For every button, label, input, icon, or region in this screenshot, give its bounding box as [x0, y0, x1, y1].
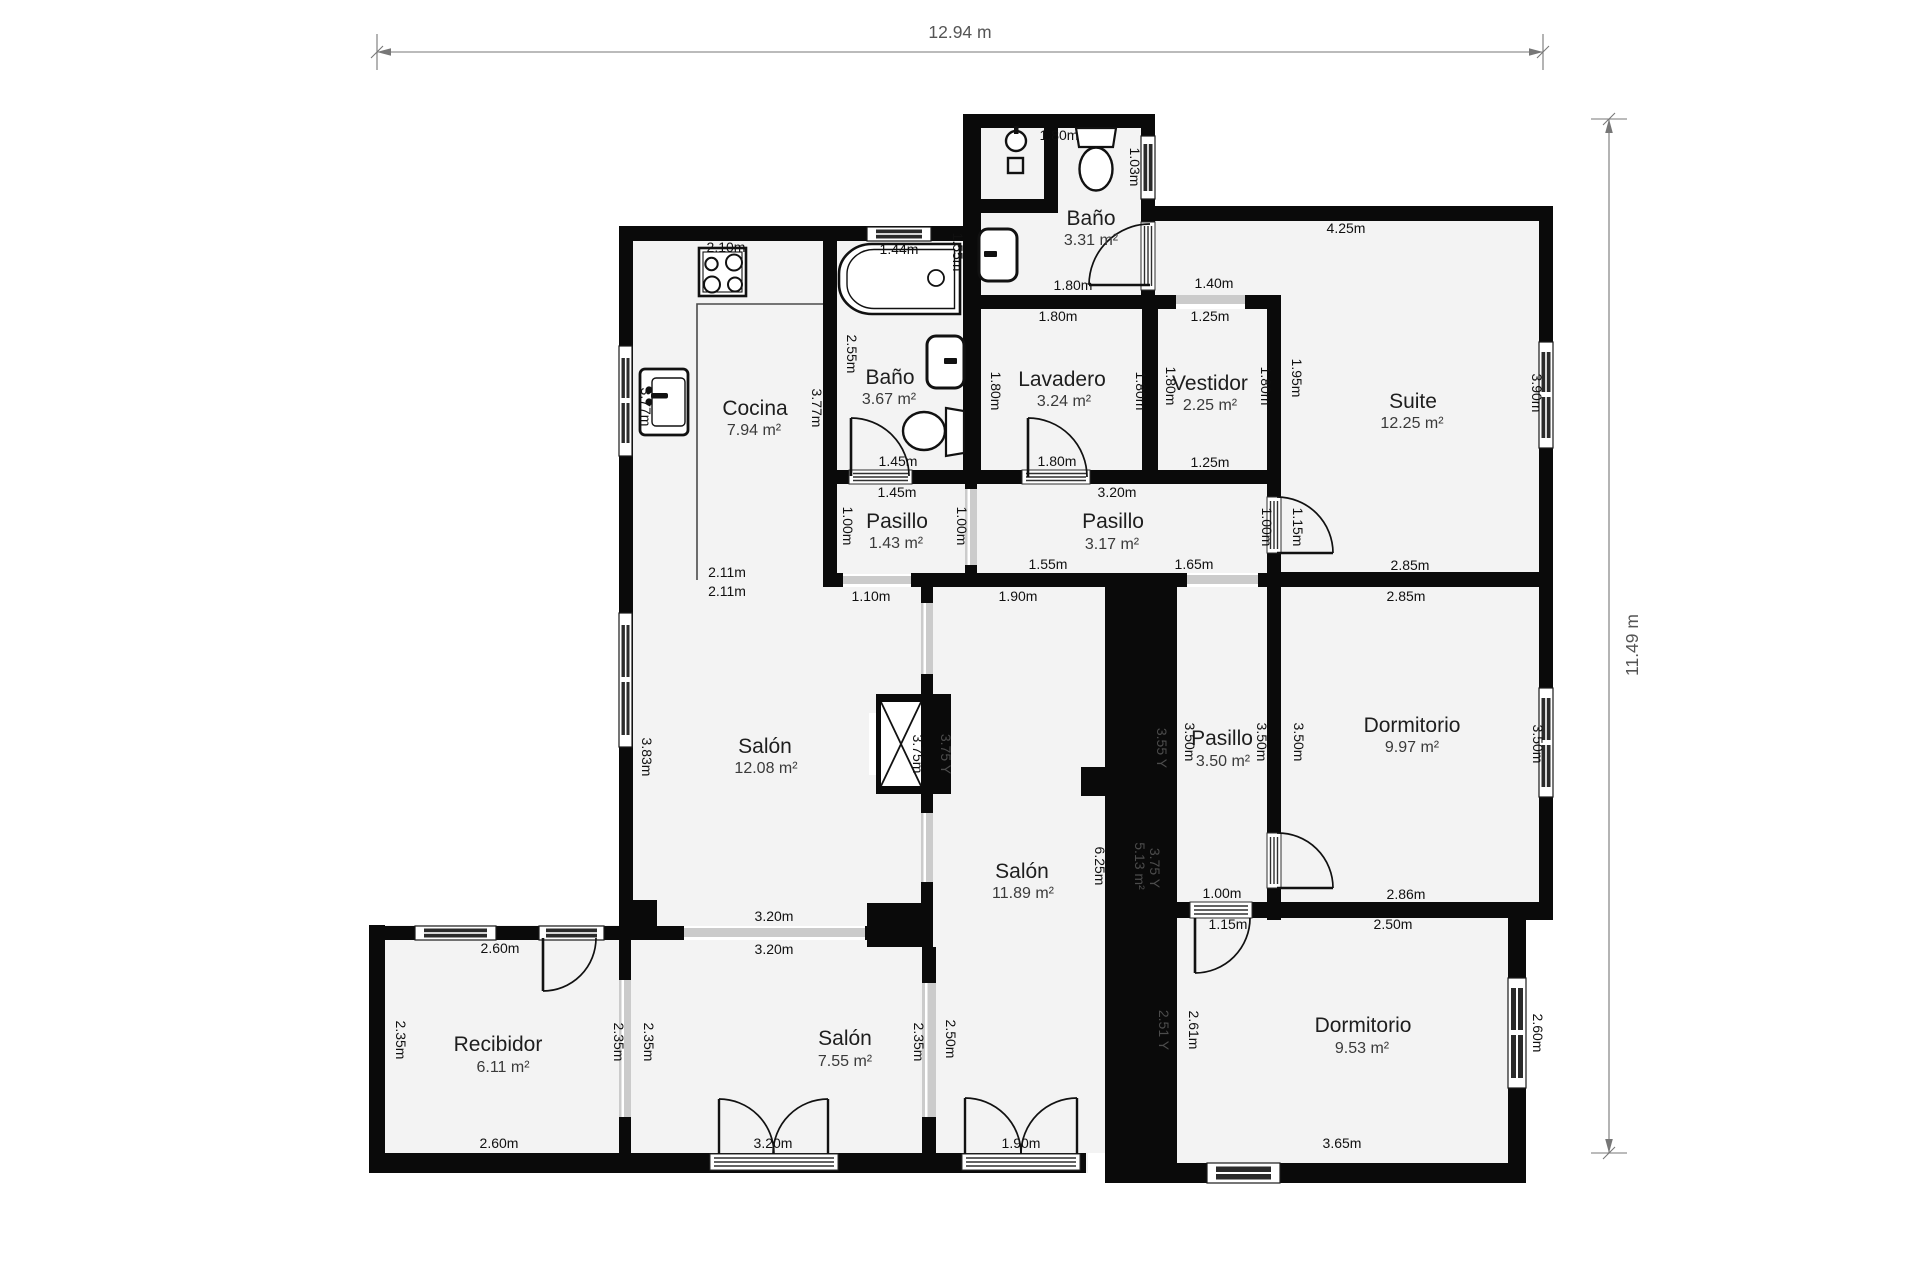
svg-text:3.17 m²: 3.17 m²	[1085, 536, 1140, 553]
svg-text:1.10m: 1.10m	[852, 588, 891, 604]
svg-text:Pasillo: Pasillo	[866, 510, 928, 533]
svg-text:1.80m: 1.80m	[1133, 372, 1149, 411]
svg-text:1.00m: 1.00m	[840, 507, 856, 546]
svg-text:1.65m: 1.65m	[1175, 556, 1214, 572]
svg-text:1.45m: 1.45m	[879, 453, 918, 469]
svg-text:2.11m: 2.11m	[708, 583, 746, 599]
svg-text:3.20m: 3.20m	[1098, 484, 1137, 500]
svg-text:1.43 m²: 1.43 m²	[869, 535, 924, 552]
svg-text:1.80m: 1.80m	[1040, 127, 1079, 143]
svg-text:2.35m: 2.35m	[611, 1023, 627, 1062]
svg-text:1.55m: 1.55m	[1029, 556, 1068, 572]
svg-text:3.65m: 3.65m	[1323, 1135, 1362, 1151]
svg-text:2.25 m²: 2.25 m²	[1183, 397, 1238, 414]
svg-text:3.90m: 3.90m	[1529, 374, 1545, 413]
svg-text:1.95m: 1.95m	[1289, 359, 1305, 398]
svg-text:3.50m: 3.50m	[1254, 723, 1270, 762]
svg-text:1.80m: 1.80m	[1163, 367, 1179, 406]
svg-text:9.53 m²: 9.53 m²	[1335, 1040, 1390, 1057]
svg-text:1.80m: 1.80m	[988, 372, 1004, 411]
svg-text:4.25m: 4.25m	[1327, 220, 1366, 236]
svg-text:1.25m: 1.25m	[1191, 308, 1230, 324]
svg-text:Pasillo: Pasillo	[1191, 727, 1253, 750]
svg-text:12.08 m²: 12.08 m²	[734, 760, 798, 777]
svg-text:6.11 m²: 6.11 m²	[476, 1059, 530, 1076]
svg-text:1.15m: 1.15m	[1290, 508, 1306, 547]
svg-text:2.50m: 2.50m	[1374, 916, 1413, 932]
svg-text:Recibidor: Recibidor	[454, 1033, 543, 1056]
svg-text:3.50 m²: 3.50 m²	[1196, 753, 1251, 770]
svg-text:3.20m: 3.20m	[755, 941, 794, 957]
svg-text:3.75 Y: 3.75 Y	[938, 734, 954, 775]
svg-text:2.10m: 2.10m	[707, 239, 746, 255]
svg-text:11.89 m²: 11.89 m²	[992, 885, 1055, 902]
svg-text:2.35m: 2.35m	[641, 1023, 657, 1062]
svg-text:3.20m: 3.20m	[754, 1135, 793, 1151]
svg-text:Baño: Baño	[1066, 207, 1115, 230]
svg-text:Salón: Salón	[738, 735, 792, 758]
svg-text:2.85m: 2.85m	[1391, 557, 1430, 573]
svg-text:3.24 m²: 3.24 m²	[1037, 393, 1092, 410]
svg-text:1.00m: 1.00m	[1259, 508, 1275, 547]
svg-text:12.94 m: 12.94 m	[928, 22, 991, 42]
svg-text:2.86m: 2.86m	[1387, 886, 1426, 902]
svg-text:3.67 m²: 3.67 m²	[862, 391, 917, 408]
svg-text:1.25m: 1.25m	[1191, 454, 1230, 470]
svg-text:3.50m: 3.50m	[1291, 723, 1307, 762]
svg-text:9.97 m²: 9.97 m²	[1385, 739, 1440, 756]
svg-text:2.60m: 2.60m	[480, 1135, 519, 1151]
svg-text:Cocina: Cocina	[722, 397, 788, 420]
svg-text:1.90m: 1.90m	[1002, 1135, 1041, 1151]
svg-text:2.60m: 2.60m	[481, 940, 520, 956]
svg-text:3.77m: 3.77m	[809, 389, 825, 428]
svg-text:1.80m: 1.80m	[1258, 367, 1274, 406]
svg-text:1.80m: 1.80m	[1054, 277, 1093, 293]
svg-text:2.11m: 2.11m	[708, 564, 746, 580]
svg-text:11.49 m: 11.49 m	[1622, 614, 1642, 676]
svg-text:Baño: Baño	[865, 366, 914, 389]
svg-text:3.20m: 3.20m	[755, 908, 794, 924]
svg-text:3.50m: 3.50m	[1182, 723, 1198, 762]
svg-text:2.55m: 2.55m	[844, 335, 860, 374]
svg-text:3.31 m²: 3.31 m²	[1064, 232, 1119, 249]
svg-text:1.90m: 1.90m	[999, 588, 1038, 604]
svg-text:3.55 Y: 3.55 Y	[1154, 728, 1170, 769]
svg-text:1.03m: 1.03m	[1127, 148, 1143, 187]
svg-text:2.51 Y: 2.51 Y	[1156, 1010, 1172, 1051]
svg-text:2.50m: 2.50m	[943, 1020, 959, 1059]
svg-text:1.15m: 1.15m	[1209, 916, 1248, 932]
svg-text:Dormitorio: Dormitorio	[1315, 1014, 1412, 1037]
svg-text:3.75m: 3.75m	[910, 735, 926, 774]
svg-text:Vestidor: Vestidor	[1172, 372, 1248, 395]
svg-text:7.94 m²: 7.94 m²	[727, 422, 782, 439]
svg-text:Suite: Suite	[1389, 390, 1437, 413]
svg-text:1.40m: 1.40m	[1195, 275, 1234, 291]
svg-text:7.55 m²: 7.55 m²	[818, 1053, 873, 1070]
svg-text:Lavadero: Lavadero	[1018, 368, 1106, 391]
svg-text:6.25m: 6.25m	[1092, 847, 1108, 886]
svg-text:3.77m: 3.77m	[638, 388, 654, 427]
svg-text:3.50m: 3.50m	[1530, 725, 1546, 764]
svg-text:2.85m: 2.85m	[1387, 588, 1426, 604]
svg-text:Pasillo: Pasillo	[1082, 510, 1144, 533]
svg-text:1.44m: 1.44m	[880, 241, 919, 257]
svg-text:1.00m: 1.00m	[1203, 885, 1242, 901]
svg-text:2.35m: 2.35m	[393, 1021, 409, 1060]
svg-text:1.80m: 1.80m	[1039, 308, 1078, 324]
svg-text:3.83m: 3.83m	[639, 738, 655, 777]
svg-text:Dormitorio: Dormitorio	[1364, 714, 1461, 737]
svg-text:3.75 Y: 3.75 Y	[1147, 848, 1163, 889]
svg-text:Salón: Salón	[818, 1027, 872, 1050]
svg-text:2.61m: 2.61m	[1186, 1011, 1202, 1050]
svg-text:2.60m: 2.60m	[1530, 1014, 1546, 1053]
svg-text:1.80m: 1.80m	[1038, 453, 1077, 469]
svg-text:1.55m: 1.55m	[950, 233, 966, 272]
svg-text:1.45m: 1.45m	[878, 484, 917, 500]
svg-text:5.13 m²: 5.13 m²	[1132, 842, 1148, 890]
svg-text:Salón: Salón	[995, 860, 1049, 883]
svg-text:12.25 m²: 12.25 m²	[1380, 415, 1444, 432]
svg-text:2.35m: 2.35m	[911, 1023, 927, 1062]
svg-text:1.00m: 1.00m	[954, 507, 970, 546]
